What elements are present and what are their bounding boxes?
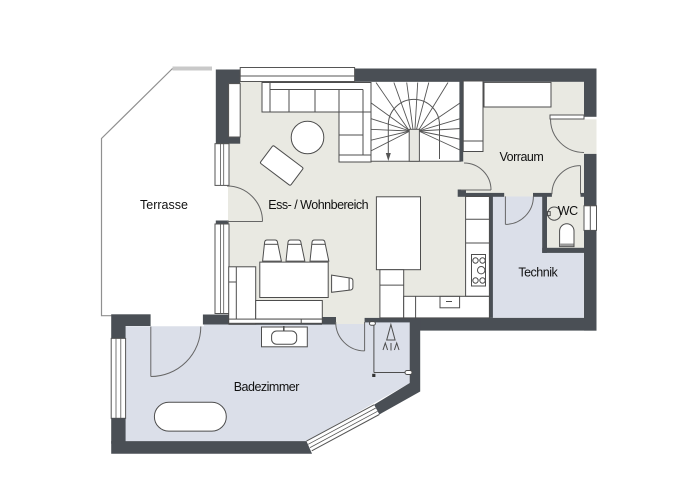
svg-text:Badezimmer: Badezimmer: [234, 380, 299, 394]
svg-text:Ess- / Wohnbereich: Ess- / Wohnbereich: [268, 198, 368, 212]
svg-text:Technik: Technik: [518, 266, 558, 280]
svg-text:Vorraum: Vorraum: [500, 150, 544, 164]
svg-text:WC: WC: [558, 204, 578, 218]
svg-text:Terrasse: Terrasse: [140, 198, 188, 212]
